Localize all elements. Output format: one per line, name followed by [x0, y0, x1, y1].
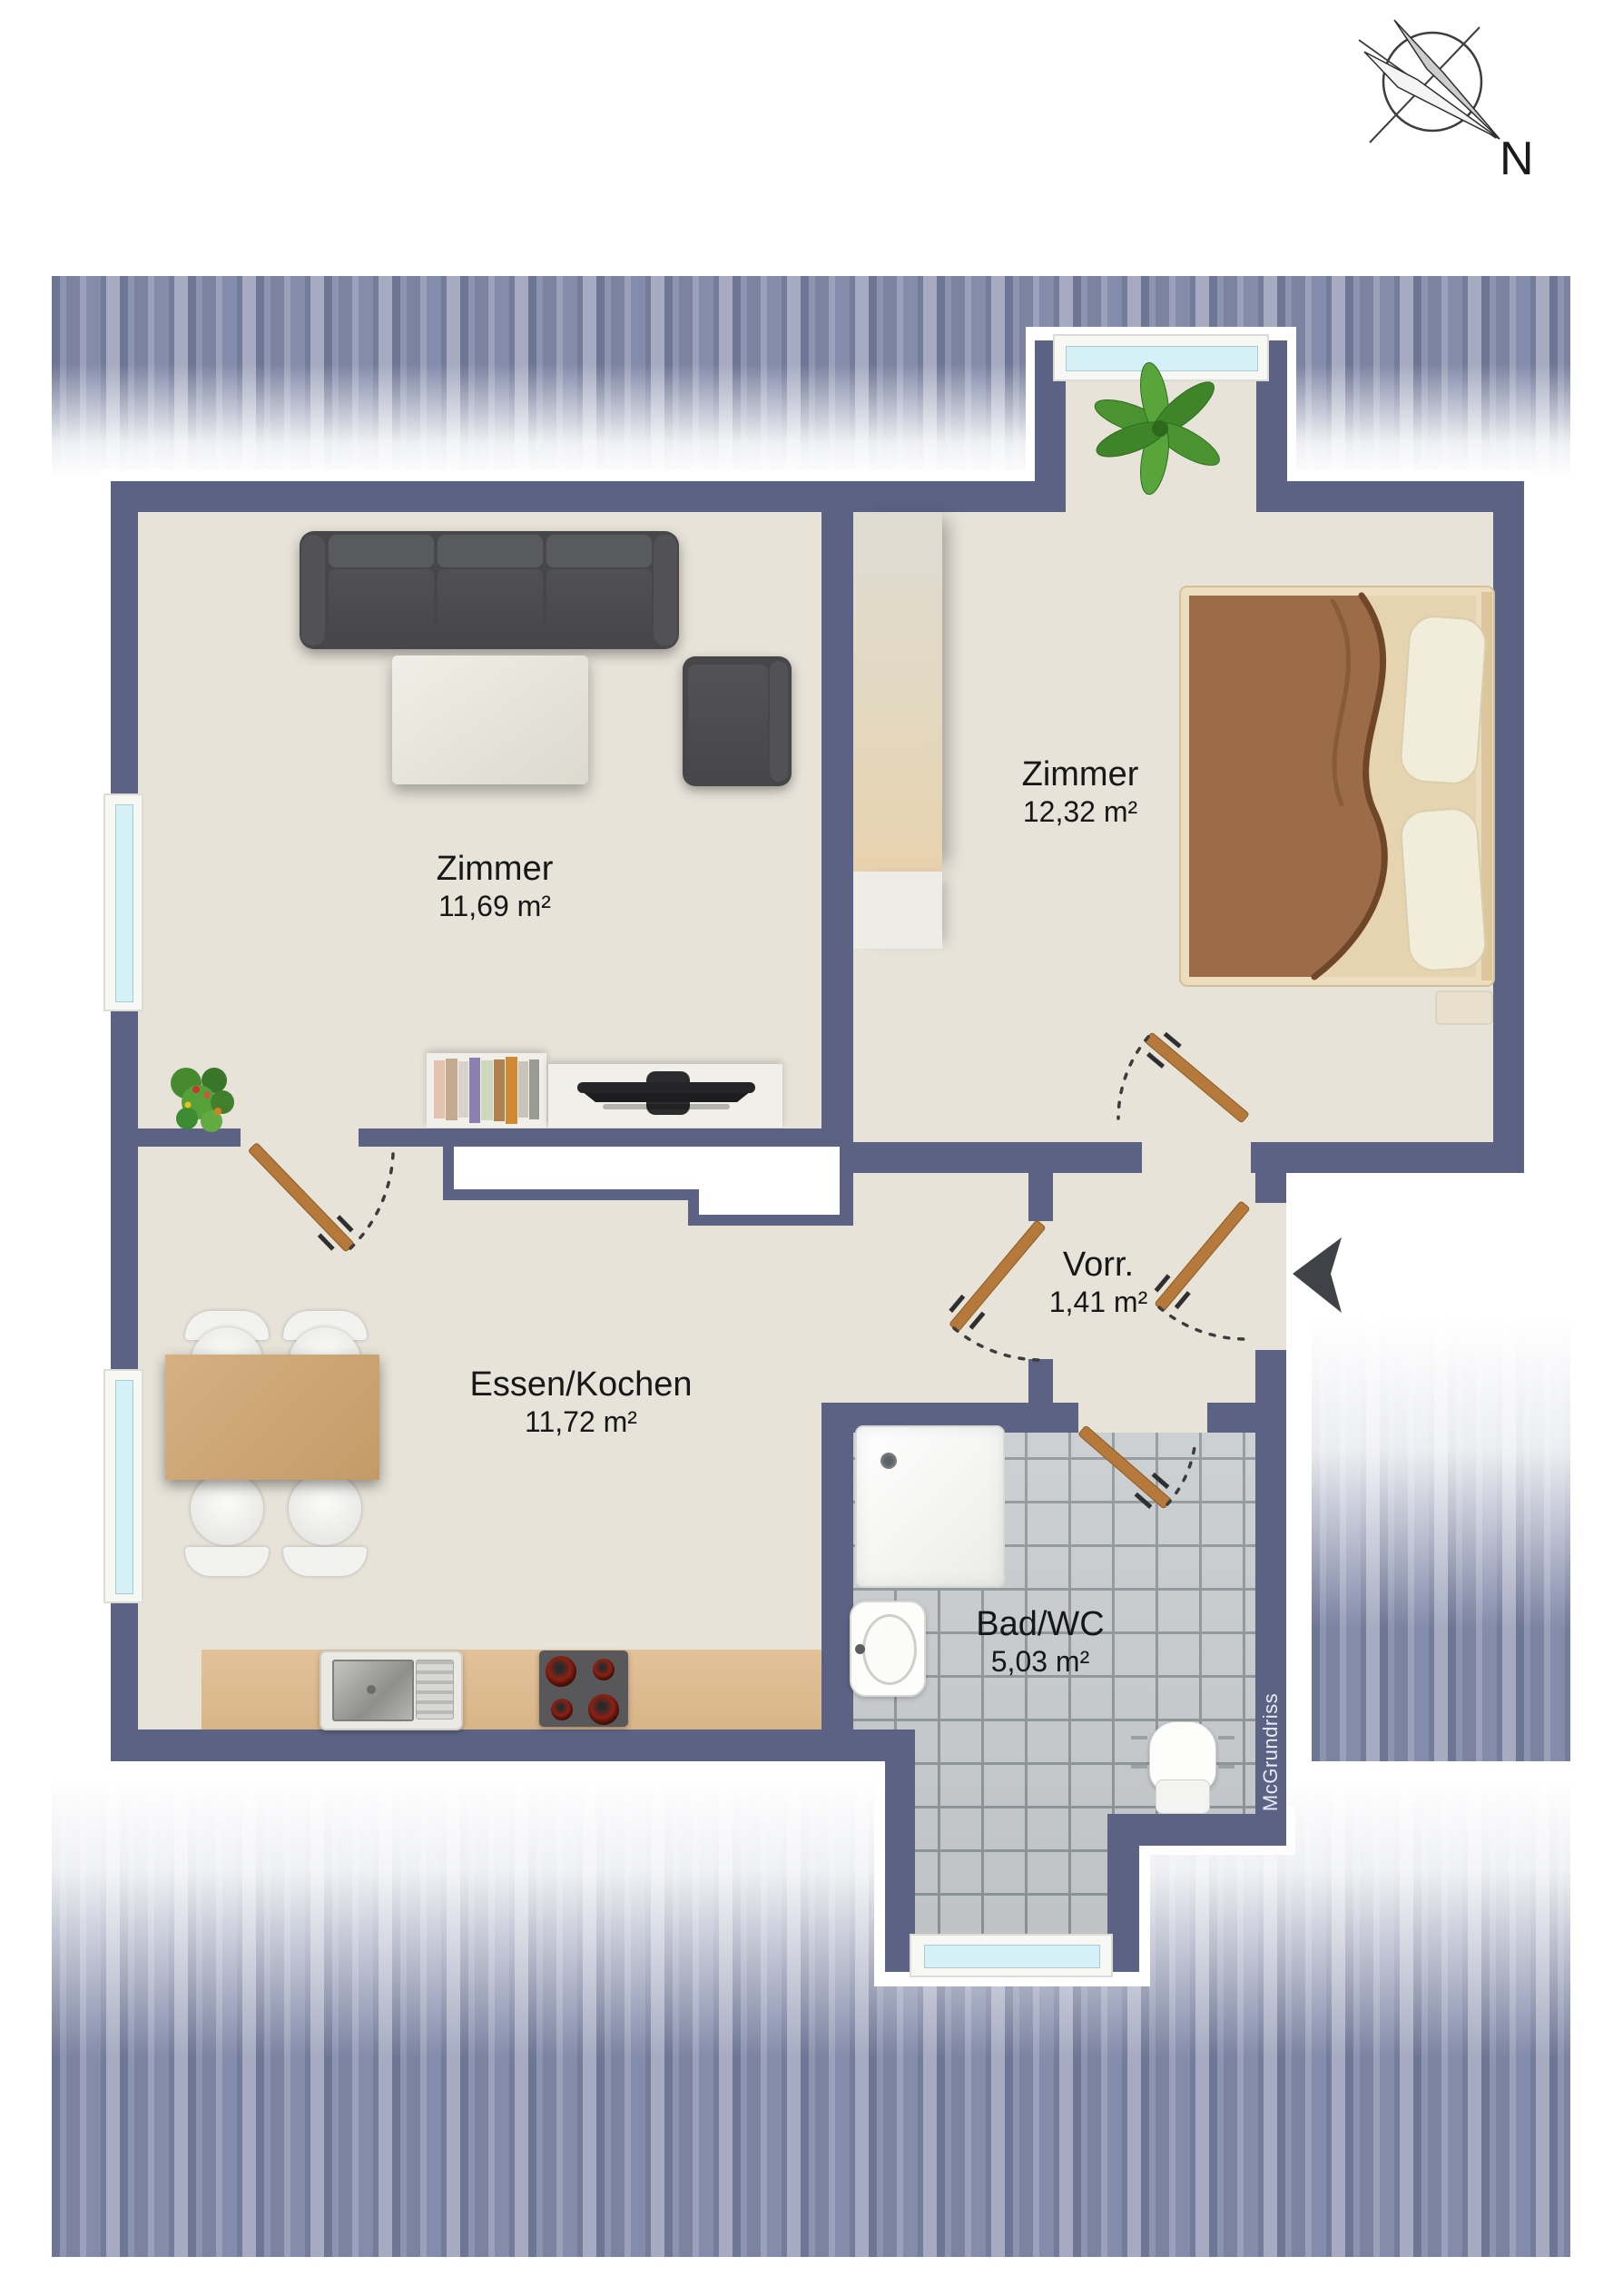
void-area	[699, 1189, 840, 1215]
cabinet	[853, 872, 942, 949]
sofa-cushion	[329, 535, 434, 567]
wall-segment	[853, 481, 1035, 512]
kitchen-counter	[202, 1650, 821, 1729]
book	[458, 1061, 468, 1118]
door-threshold	[241, 1128, 359, 1147]
sofa-seat	[546, 569, 652, 645]
toilet	[1149, 1721, 1216, 1814]
cooktop	[539, 1651, 628, 1727]
room-name: Zimmer	[437, 850, 554, 889]
wall-segment	[111, 481, 853, 512]
washbasin-bowl	[862, 1614, 917, 1685]
wall-segment	[840, 1147, 853, 1226]
wall-segment	[1028, 1173, 1053, 1221]
sofa	[300, 531, 679, 649]
book	[446, 1059, 457, 1120]
book	[469, 1058, 480, 1123]
room-area: 11,72 m²	[469, 1404, 692, 1439]
room-bedroom-floor	[853, 512, 1493, 1142]
chair-seat	[289, 1473, 361, 1545]
wall-segment	[1028, 1359, 1053, 1403]
burner-icon	[593, 1659, 615, 1680]
room-area: 1,41 m²	[1049, 1285, 1147, 1319]
book	[506, 1057, 517, 1124]
burner-icon	[551, 1699, 573, 1720]
bookshelf	[427, 1053, 546, 1128]
window-glass	[115, 1380, 133, 1594]
north-label: N	[1500, 133, 1534, 185]
room-area: 12,32 m²	[1022, 794, 1139, 829]
sink-drain-icon	[367, 1685, 376, 1694]
room-label-hall: Vorr. 1,41 m²	[1049, 1246, 1147, 1319]
sofa-armrest	[301, 535, 325, 645]
wall-segment	[443, 1189, 699, 1200]
void-area	[454, 1147, 840, 1189]
wall-segment	[821, 1403, 853, 1729]
sink-drainboard	[416, 1660, 454, 1720]
kitchen-sink	[320, 1651, 463, 1730]
chair-seat	[191, 1473, 263, 1545]
dining-chair	[283, 1473, 367, 1576]
sofa-cushion	[546, 535, 652, 567]
watermark: McGrundriss	[1254, 1680, 1287, 1825]
wall-segment	[111, 1128, 241, 1147]
window-glass	[115, 804, 133, 1002]
book	[494, 1059, 505, 1121]
room-name: Vorr.	[1049, 1246, 1147, 1285]
wall-segment	[853, 1142, 1142, 1173]
wall-segment	[1287, 481, 1524, 512]
room-label-bath: Bad/WC 5,03 m²	[976, 1605, 1104, 1679]
door-threshold	[1142, 1142, 1251, 1173]
sofa-seat	[438, 569, 543, 645]
burner-icon	[588, 1694, 619, 1725]
book	[434, 1060, 445, 1118]
room-area: 5,03 m²	[976, 1644, 1104, 1679]
coffee-table	[392, 655, 588, 784]
wall-segment	[1493, 481, 1524, 1173]
door-threshold	[1255, 1203, 1286, 1350]
washbasin	[850, 1601, 926, 1697]
shower-tray	[855, 1425, 1005, 1588]
armchair-back	[770, 661, 788, 782]
room-label-bedroom: Zimmer 12,32 m²	[1022, 755, 1139, 829]
room-area: 11,69 m²	[437, 889, 554, 923]
window-glass	[924, 1945, 1100, 1968]
wall-segment	[111, 1729, 915, 1761]
room-name: Zimmer	[1022, 755, 1139, 794]
room-kitchen-floor	[853, 1173, 1028, 1403]
roof-band-bottom	[52, 1761, 1570, 2257]
wall-segment	[1251, 1142, 1524, 1173]
wall-segment	[821, 481, 853, 1147]
compass-icon: N	[1359, 20, 1534, 185]
door-threshold	[1078, 1403, 1207, 1433]
wall-segment	[1207, 1403, 1286, 1433]
roof-band-right	[1312, 1289, 1570, 1761]
window-glass	[1066, 346, 1258, 371]
armchair-seat	[688, 665, 768, 778]
wall-segment	[688, 1215, 853, 1226]
shower-drain-icon	[880, 1453, 897, 1469]
sofa-cushion	[438, 535, 543, 567]
room-name: Bad/WC	[976, 1605, 1104, 1644]
room-label-kitchen: Essen/Kochen 11,72 m²	[469, 1365, 692, 1439]
book	[518, 1061, 528, 1118]
dining-chair	[185, 1473, 269, 1576]
tv-sideboard	[548, 1064, 782, 1128]
toilet-tank	[1156, 1779, 1210, 1814]
chair-back	[283, 1547, 367, 1576]
dining-table	[165, 1355, 379, 1480]
room-name: Essen/Kochen	[469, 1365, 692, 1404]
book	[529, 1059, 539, 1119]
book	[481, 1060, 493, 1120]
wall-segment	[359, 1128, 853, 1147]
washbasin-tap-icon	[855, 1644, 865, 1654]
dormer-floor	[1066, 363, 1256, 517]
sofa-armrest	[654, 535, 677, 645]
burner-icon	[546, 1656, 576, 1687]
armchair	[683, 656, 792, 786]
wall-segment	[1255, 1173, 1286, 1203]
roof-band-top	[52, 276, 1570, 485]
room-label-living: Zimmer 11,69 m²	[437, 850, 554, 923]
wardrobe	[853, 512, 942, 872]
chair-back	[185, 1547, 269, 1576]
floorplan-canvas: Zimmer 11,69 m² Zimmer 12,32 m² Essen/Ko…	[0, 0, 1623, 2296]
sofa-seat	[329, 569, 434, 645]
